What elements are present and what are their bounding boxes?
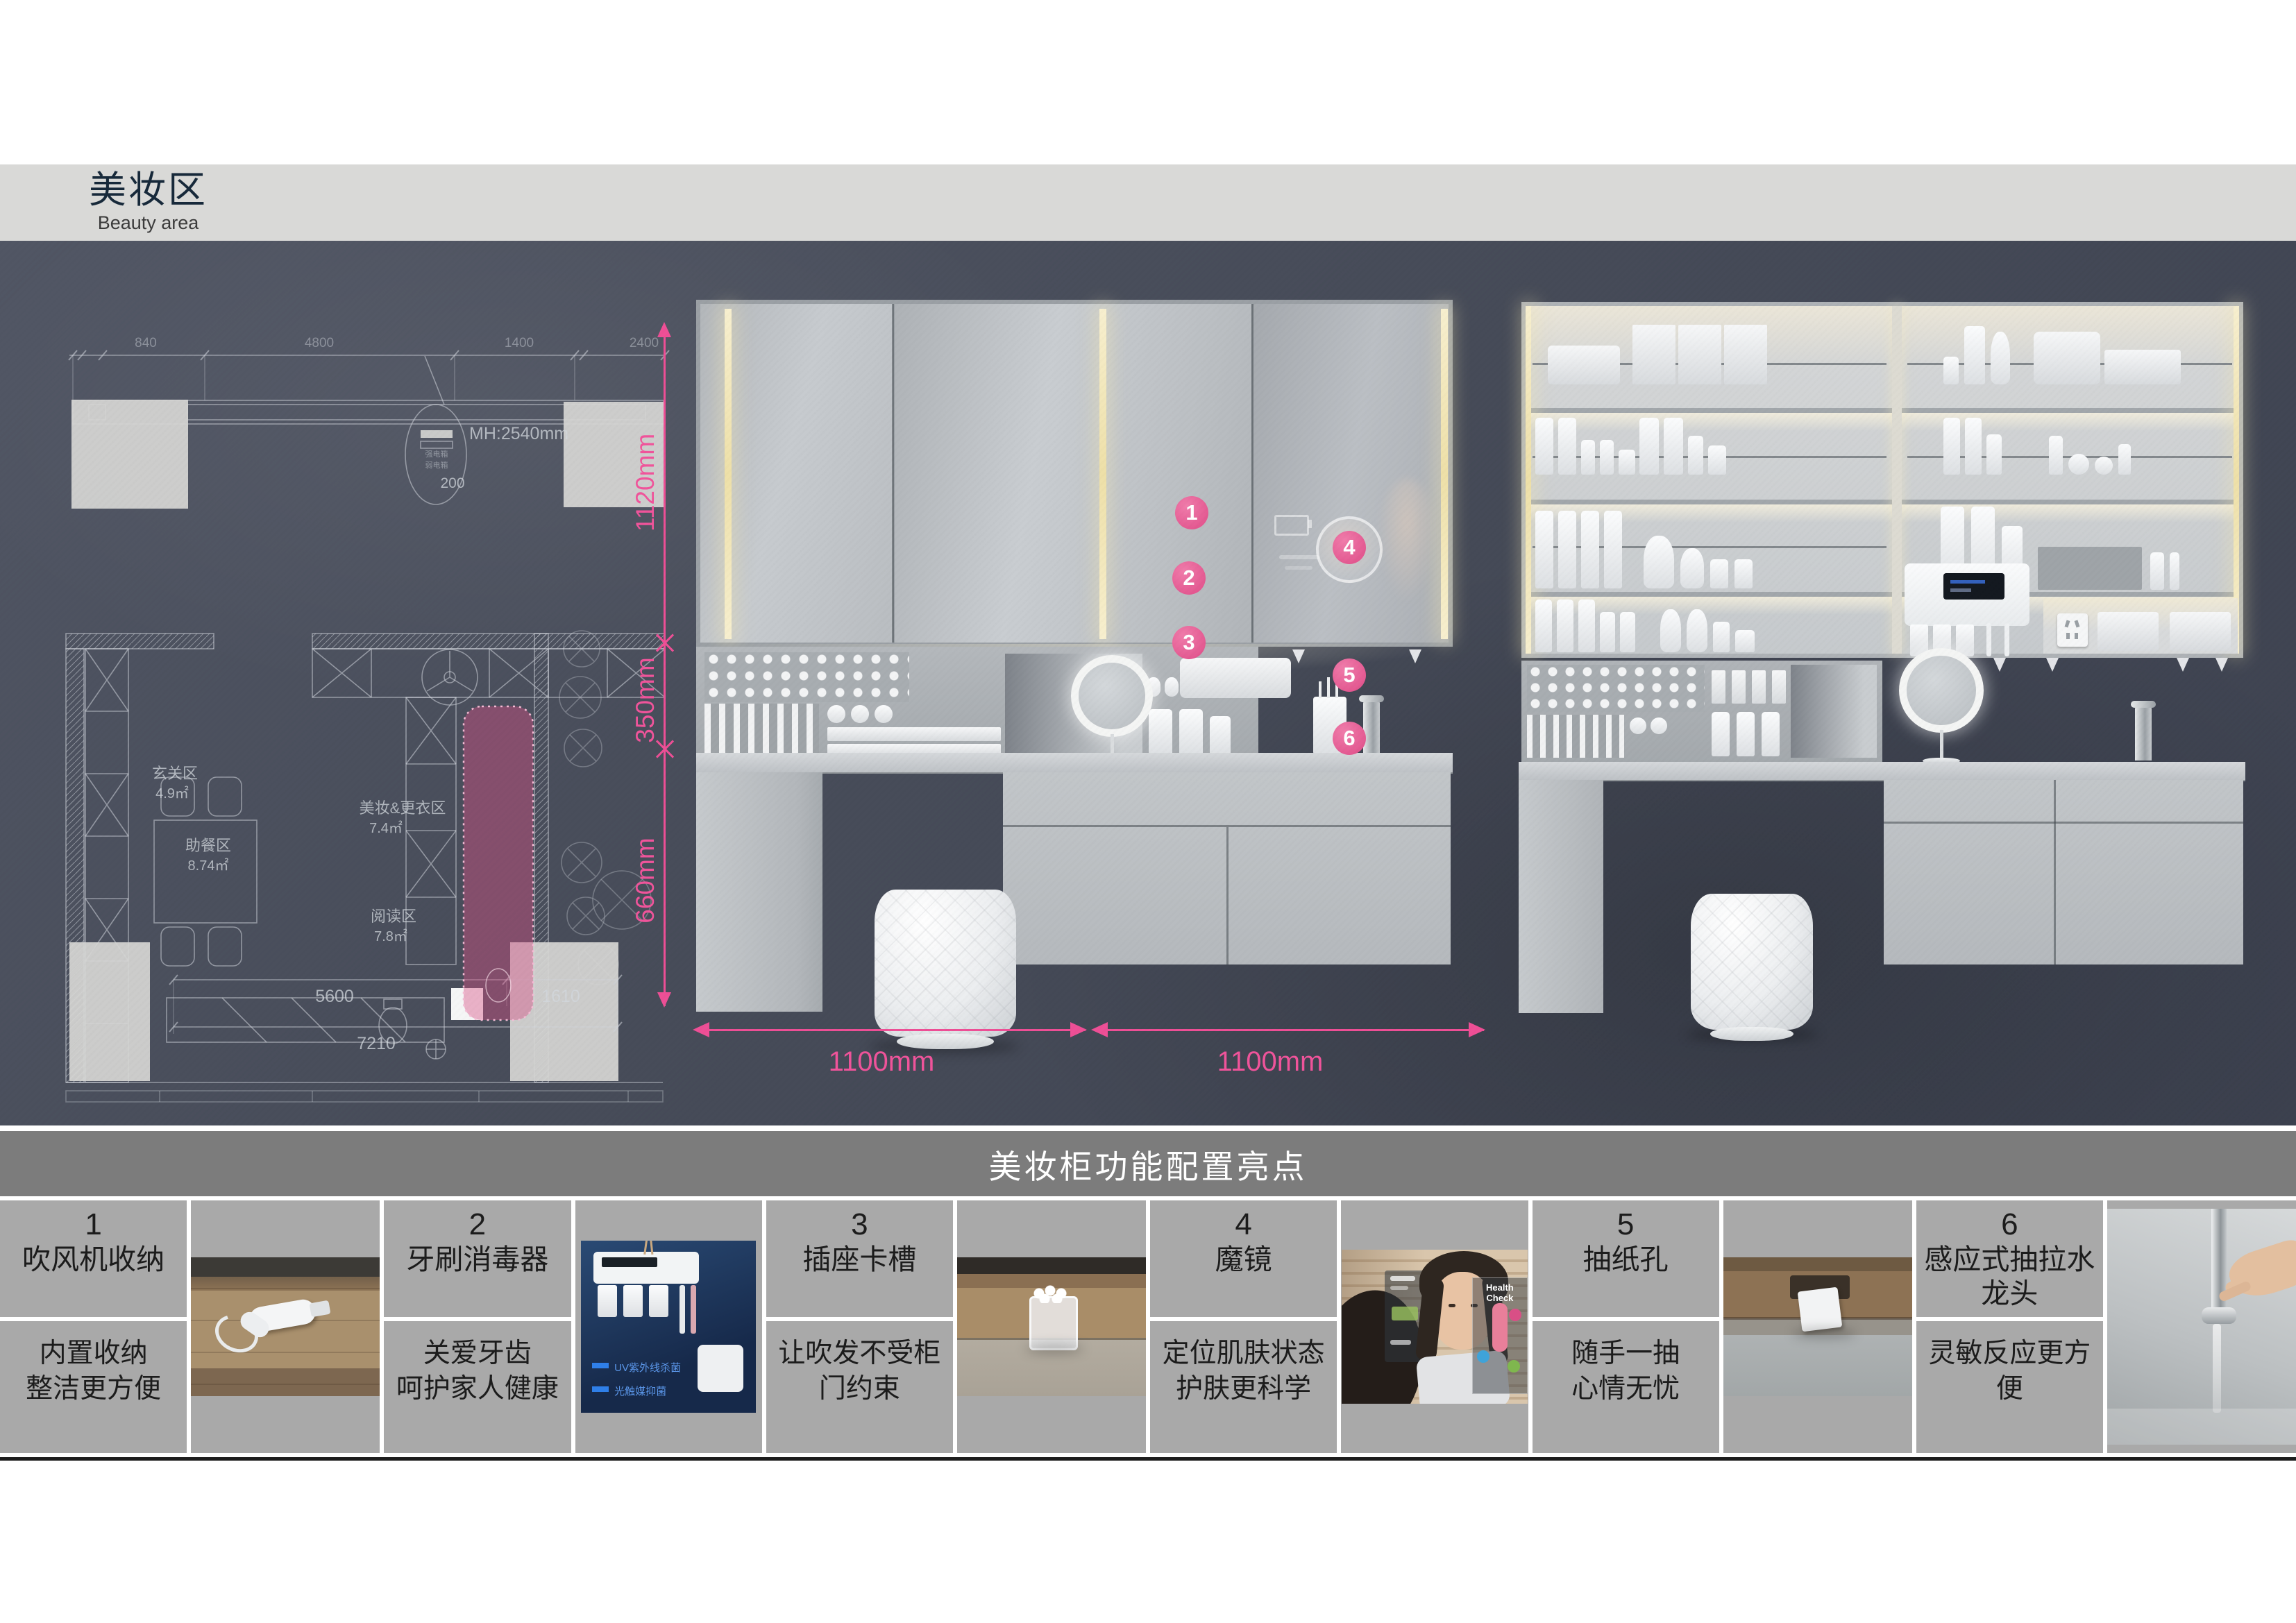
circle-note: 200 — [440, 475, 464, 491]
dim-1100mm-left: 1100mm — [777, 1046, 986, 1078]
shelf-items — [2049, 436, 2131, 475]
height-dimension-line — [664, 326, 666, 1006]
floor-plan: 840 4800 1400 2400 MH:2540mm 200 强电箱 弱电箱… — [38, 316, 677, 1121]
faucet — [2135, 705, 2152, 760]
feature-photo-cell — [191, 1200, 380, 1453]
stool-base — [1710, 1027, 1793, 1041]
shelf-items — [1548, 346, 1620, 384]
hook — [2177, 658, 2189, 672]
shelf-items — [2034, 332, 2181, 384]
shelf-items — [1535, 418, 1635, 475]
marker-3: 3 — [1172, 626, 1206, 659]
svg-text:7.4㎡: 7.4㎡ — [369, 819, 403, 836]
swab-cup — [1029, 1296, 1078, 1350]
photo-toothbrush-sterilizer: UV紫外线杀菌 光触媒抑菌 — [581, 1241, 756, 1413]
power-outlet — [2057, 613, 2088, 647]
base-cabinet-left — [696, 772, 822, 1012]
dim-top-4: 2400 — [630, 336, 659, 350]
features-table: 1 吹风机收纳 内置收纳 整洁更方便 2 牙刷消毒器 关爱牙齿 呵护家人健康 — [0, 1200, 2296, 1457]
drawer-box — [827, 727, 1001, 741]
feature-photo-cell: UV紫外线杀菌 光触媒抑菌 — [575, 1200, 762, 1453]
lit-niche — [2043, 598, 2238, 654]
shelf-items — [1535, 511, 1622, 588]
dim-1100mm-right: 1100mm — [1166, 1046, 1374, 1078]
photo-hairdryer-storage — [191, 1257, 380, 1396]
marker-1: 1 — [1175, 496, 1208, 529]
health-check-caption: Health Check — [1473, 1282, 1527, 1303]
photocatalyst-caption: 光触媒抑菌 — [614, 1384, 666, 1398]
feature-photo-cell — [2107, 1200, 2296, 1453]
mirror-cabinet — [696, 300, 1453, 647]
ui-health-panel: Health Check — [1472, 1277, 1528, 1394]
countertop — [696, 753, 1453, 774]
photo-magic-mirror: Health Check — [1342, 1250, 1528, 1404]
mirror-door-magic — [1253, 304, 1449, 643]
marker-6: 6 — [1333, 722, 1366, 755]
mh-label: MH:2540mm — [469, 424, 568, 443]
feature-title-cell: 3 插座卡槽 — [766, 1200, 953, 1317]
dim-350mm: 350mm — [631, 652, 660, 749]
dim-top-1: 840 — [135, 336, 157, 350]
toothbrush — [1986, 623, 1991, 656]
tissue — [1797, 1287, 1842, 1332]
water-stream — [2213, 1324, 2221, 1413]
face-camera-circle — [1316, 516, 1383, 583]
faucet-spout — [2202, 1307, 2236, 1324]
vanity-mirror — [1899, 648, 1984, 733]
tube-rack — [1712, 670, 1786, 704]
feature-desc-cell: 内置收纳 整洁更方便 — [0, 1321, 187, 1453]
photo-sensor-faucet — [2107, 1209, 2296, 1445]
features-header-text: 美妆柜功能配置亮点 — [989, 1140, 1308, 1188]
hook — [1292, 649, 1305, 663]
features-header: 美妆柜功能配置亮点 — [0, 1131, 2296, 1196]
faucet — [1363, 699, 1380, 756]
cream-jars — [827, 705, 893, 723]
stool — [875, 890, 1016, 1037]
toothbrush — [2004, 623, 2009, 656]
feature-desc-cell: 定位肌肤状态 护肤更科学 — [1150, 1321, 1337, 1453]
svg-text:4.9㎡: 4.9㎡ — [155, 785, 189, 801]
dim-660mm: 660mm — [631, 832, 660, 929]
feature-title-cell: 1 吹风机收纳 — [0, 1200, 187, 1317]
shelf-items — [2150, 552, 2179, 590]
feature-photo-cell — [957, 1200, 1146, 1453]
bottom-rule — [0, 1457, 2296, 1461]
dim-top-2: 4800 — [305, 336, 334, 350]
shelf-items — [1632, 325, 1767, 384]
beauty-zone-highlight — [464, 706, 533, 1020]
room-entry: 玄关区 — [152, 765, 198, 782]
drawer-box — [827, 744, 1001, 756]
lipstick-organizer — [704, 652, 909, 702]
shelf-items — [1943, 326, 2010, 384]
strong-box-label: 强电箱 — [425, 449, 448, 459]
marker-4: 4 — [1333, 531, 1366, 564]
tall-tubes — [1712, 712, 1780, 756]
dim-1610: 1610 — [541, 987, 580, 1006]
feature-number: 1 — [85, 1207, 101, 1243]
feature-desc-cell: 随手一抽 心情无忧 — [1533, 1321, 1719, 1453]
dim-1120mm: 1120mm — [631, 434, 660, 532]
shelf-items — [1535, 600, 1635, 652]
hook — [1409, 649, 1421, 663]
lipstick-organizer — [1527, 665, 1705, 712]
gray-box — [2038, 547, 2142, 590]
hook — [1993, 658, 2006, 672]
feature-title-cell: 5 抽纸孔 — [1533, 1200, 1719, 1317]
feature-title-cell: 6 感应式抽拉水 龙头 — [1916, 1200, 2103, 1317]
shelf-items — [1943, 418, 2002, 475]
feature-desc-cell: 让吹发不受柜 门约束 — [766, 1321, 953, 1453]
dim-5600: 5600 — [315, 987, 354, 1006]
dim-top-3: 1400 — [505, 336, 534, 350]
mirror-door-left — [700, 304, 893, 643]
feature-desc: 内置收纳 整洁更方便 — [26, 1336, 161, 1407]
mirror-door-center — [895, 304, 1251, 643]
battery-icon — [1274, 515, 1309, 536]
metal-panel — [1791, 665, 1877, 758]
feature-photo-cell — [1723, 1200, 1912, 1453]
dim-7210: 7210 — [357, 1034, 396, 1053]
shelf-items — [1660, 609, 1755, 652]
stool — [1691, 894, 1813, 1030]
width-dimension-right — [1095, 1029, 1484, 1031]
countertop — [1519, 762, 2245, 781]
page-title: 美妆区 — [89, 170, 208, 211]
white-storage-box — [1180, 658, 1291, 698]
sterilizer-cups — [1910, 624, 1974, 656]
base-cabinet-left — [1519, 780, 1603, 1013]
hook — [2215, 658, 2228, 672]
feature-desc-cell: 关爱牙齿 呵护家人健康 — [384, 1321, 571, 1453]
title-band: 美妆区 Beauty area — [0, 164, 2296, 241]
cream-jars — [1630, 717, 1667, 734]
room-reading: 阅读区 — [371, 908, 416, 925]
photo-tissue-hole — [1723, 1257, 1912, 1396]
width-dimension-left — [697, 1029, 1086, 1031]
hook — [2046, 658, 2059, 672]
nail-polish-rack — [1527, 715, 1624, 758]
weak-box-label: 弱电箱 — [425, 460, 448, 470]
feature-title: 吹风机收纳 — [22, 1243, 164, 1277]
vanity-mirror — [1071, 655, 1153, 737]
svg-text:8.74㎡: 8.74㎡ — [188, 857, 229, 874]
photo-socket-slot — [957, 1257, 1146, 1396]
shelf-items — [1639, 418, 1726, 475]
slide-page: 美妆区 Beauty area — [0, 0, 2296, 1623]
toothbrush-sterilizer — [1905, 563, 2029, 626]
nail-polish-rack — [704, 704, 819, 755]
feature-desc-cell: 灵敏反应更方 便 — [1916, 1321, 2103, 1453]
stool-base — [897, 1034, 994, 1049]
jar — [698, 1345, 743, 1392]
svg-text:7.8㎡: 7.8㎡ — [374, 928, 407, 944]
egg-sponges — [1147, 677, 1179, 697]
open-shelf-cabinet — [1521, 302, 2243, 658]
brush-cup — [1313, 697, 1347, 755]
marker-5: 5 — [1333, 658, 1366, 692]
render-scene: 840 4800 1400 2400 MH:2540mm 200 强电箱 弱电箱… — [0, 241, 2296, 1125]
metal-panel — [1005, 654, 1142, 755]
feature-photo-cell: Health Check — [1341, 1200, 1528, 1453]
body-figure — [1492, 1303, 1508, 1352]
room-beauty: 美妆&更衣区 — [360, 799, 446, 817]
shelf-items — [1644, 536, 1753, 588]
feature-title-cell: 2 牙刷消毒器 — [384, 1200, 571, 1317]
led-strip — [1099, 309, 1106, 639]
lotion-bottles — [1149, 709, 1231, 755]
room-dining: 助餐区 — [185, 837, 231, 854]
led-strip — [725, 309, 732, 639]
mirror-face-reflection — [1378, 479, 1437, 604]
marker-2: 2 — [1172, 561, 1206, 595]
shelf-items — [1941, 507, 2023, 588]
base-cabinet-right — [1884, 780, 2243, 965]
base-cabinet-right — [1003, 772, 1451, 965]
uv-caption: UV紫外线杀菌 — [614, 1360, 681, 1375]
backsplash — [696, 647, 1258, 756]
backsplash — [1521, 661, 1882, 763]
led-strip — [1441, 309, 1448, 639]
feature-title-cell: 4 魔镜 — [1150, 1200, 1337, 1317]
page-subtitle: Beauty area — [89, 212, 208, 234]
